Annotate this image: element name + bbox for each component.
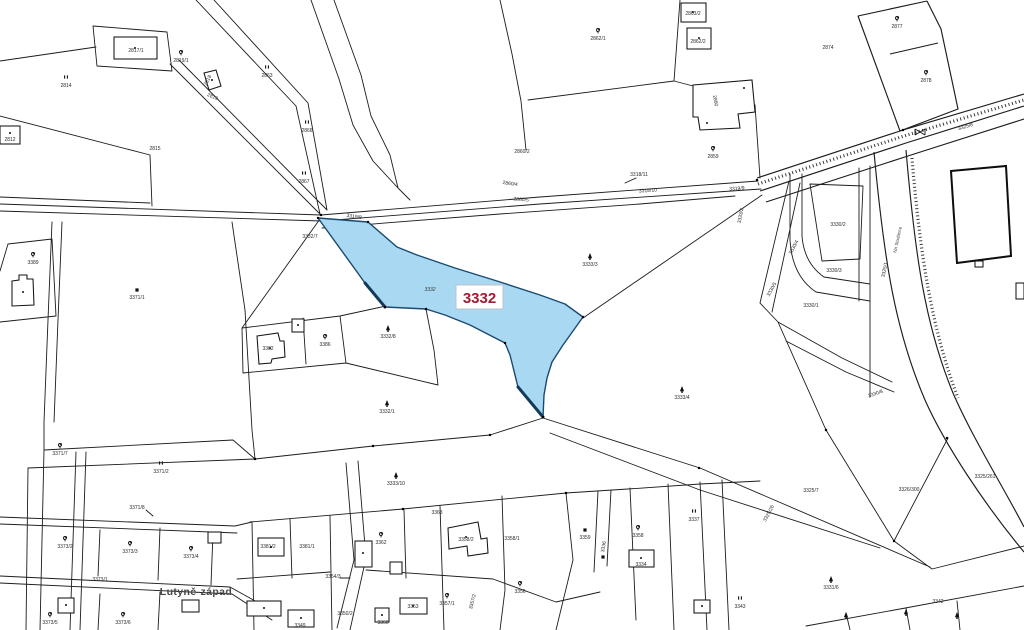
parcel-number-label: 2819 [206,92,219,102]
parcel-number-label: 2878 [920,78,931,84]
parcel-number-label: 3381/2 [260,544,276,550]
parcel-number-label: 3343 [734,604,745,610]
cadastral-map: 2817/12819/12814281228152863286628672818… [0,0,1024,630]
parcel-number-label: 3373/1 [92,577,108,583]
parcel-number-label: 3373/3 [122,549,138,555]
deciduous-icon [446,594,450,599]
deciduous-icon [519,582,523,587]
deciduous-icon [712,147,716,152]
cadastral-map-viewport: 2817/12819/12814281228152863286628672818… [0,0,1024,630]
conifer-icon [588,253,592,260]
parcel-number-label: 3359 [579,535,590,541]
parcel-number-label: 3333/2 [737,208,746,224]
parcel-number-label: 3332/7 [302,234,318,240]
parcel-number-label: 2867 [298,179,309,185]
parcel-number-label: 3331/6 [823,585,839,591]
parcel-number-label: 3371/8 [129,505,145,511]
parcel-number-label: 2863 [261,73,272,79]
parcel-number-label: 3330/3 [826,268,842,274]
parcel-number-label: 2815 [149,146,160,152]
deciduous-icon [122,613,126,618]
parcel-number-label: 3333/4 [674,395,690,401]
deciduous-icon [64,537,68,542]
parcel-number-label: 3356 [514,589,525,595]
parcel-number-label: 3334 [635,562,646,568]
parcel-number-label: 3371/7 [52,451,68,457]
parcel-number-label: 3330/2 [830,222,846,228]
parcel-number-label: 2877 [891,24,902,30]
conifer-icon [386,325,390,332]
parcel-number-label: 2874 [822,45,833,51]
parcel-number-label: 3336 [600,541,608,553]
parcel-number-label: 3381/1 [299,544,315,550]
deciduous-icon [129,542,133,547]
parcel-number-label: 3330/1 [803,303,819,309]
deciduous-icon [925,71,929,76]
parcel-number-label: 3318/11 [630,172,648,178]
parcel-number-label: 2866 [301,128,312,134]
meadow-icon [306,120,309,123]
meadow-icon [266,65,269,68]
parcel-number-label: 2862/1 [590,36,606,42]
parcel-number-label: 3389 [27,260,38,266]
conifer-icon [680,386,684,393]
culvert-icon [915,129,925,135]
parcel-number-label: 3342 [932,599,943,605]
parcel-number-label: 3319/9 [729,185,745,192]
parcel-number-label: 3318/10 [639,187,658,194]
deciduous-icon [180,51,184,56]
parcel-3332-label-box: 3332 [456,285,503,309]
parcel-number-label: 3362 [375,540,386,546]
highlighted-parcel-3332[interactable] [318,218,583,417]
parcel-number-label: 3363 [431,510,442,516]
deciduous-icon [380,533,384,538]
parcel-number-label: 2812 [4,137,15,143]
parcel-number-label: 3357/1 [439,601,455,607]
deciduous-icon [324,335,328,340]
parcel-number-label: 2819/1 [173,58,189,64]
conifer-icon [385,400,389,407]
parcel-number-label: 3325/8 [958,122,975,132]
meadow-icon [739,596,742,599]
place-name-label: Lutyně-západ [160,586,232,598]
deciduous-icon [59,444,63,449]
parcel-number-label: 3332/1 [379,409,395,415]
conifer-icon [829,576,833,583]
meadow-icon [693,509,696,512]
deciduous-icon [597,29,601,34]
parcel-number-label: 3333/10 [387,481,405,487]
parcel-number-label: 3373/5 [42,620,58,626]
parcel-number-label: 3350/2 [337,611,353,617]
parcel-number-label: 3354/3 [325,574,341,580]
parcel-number-label: 3382 [262,346,273,352]
parcel-number-label: 3373/4 [183,554,199,560]
parcel-number-label: 3358 [632,533,643,539]
building-mark-icon [135,288,138,291]
parcel-number-label: 3353 [407,604,418,610]
deciduous-icon [190,547,194,552]
parcel-number-label: 3371/2 [153,469,169,475]
survey-nodes [254,129,948,542]
parcel-number-label: 3349 [294,623,305,629]
parcel-number-label: 3358/1 [504,536,520,542]
deciduous-icon [896,17,900,22]
parcel-number-label: 3325/7 [803,488,819,494]
conifer-icon [394,472,398,479]
parcel-number-label: 3325/261 [975,474,996,480]
parcel-number-label: 3357/2 [468,593,478,610]
building-mark-icon [601,555,604,558]
parcel-number-label: 3326/300 [899,487,920,493]
parcel-number-label: 3358/2 [458,537,474,543]
parcel-number-label: 2817/1 [128,48,144,54]
parcel-number-label: 3337 [688,517,699,523]
deciduous-icon [637,526,641,531]
parcel-3332-inline-label: 3332 [424,287,435,293]
building-mark-icon [583,528,586,531]
parcel-number-label: 3333/3 [582,262,598,268]
meadow-icon [303,171,306,174]
parcel-number-label: 3373/2 [57,544,73,550]
parcel-number-label: 2862/2 [690,39,706,45]
parcel-number-label: 3386 [319,342,330,348]
parcel-number-label: 3373/6 [115,620,131,626]
deciduous-icon [49,613,53,618]
parcel-number-label: 2860/2 [514,149,530,155]
parcel-number-label: 3360 [377,620,388,626]
parcel-number-label: 3371/1 [129,295,145,301]
parcel-3332-label-text: 3332 [463,290,496,307]
deciduous-icon [32,253,36,258]
parcel-number-label: 2860/5 [513,196,529,203]
parcel-number-label: 2860/4 [502,180,518,188]
parcel-number-label: 2814 [60,83,71,89]
parcel-number-label: 2859 [707,154,718,160]
parcel-number-label: 2863/2 [685,11,701,17]
parcel-number-label: 3332/8 [380,334,396,340]
meadow-icon [65,75,68,78]
street-name-label: Na Studánce [892,226,903,253]
